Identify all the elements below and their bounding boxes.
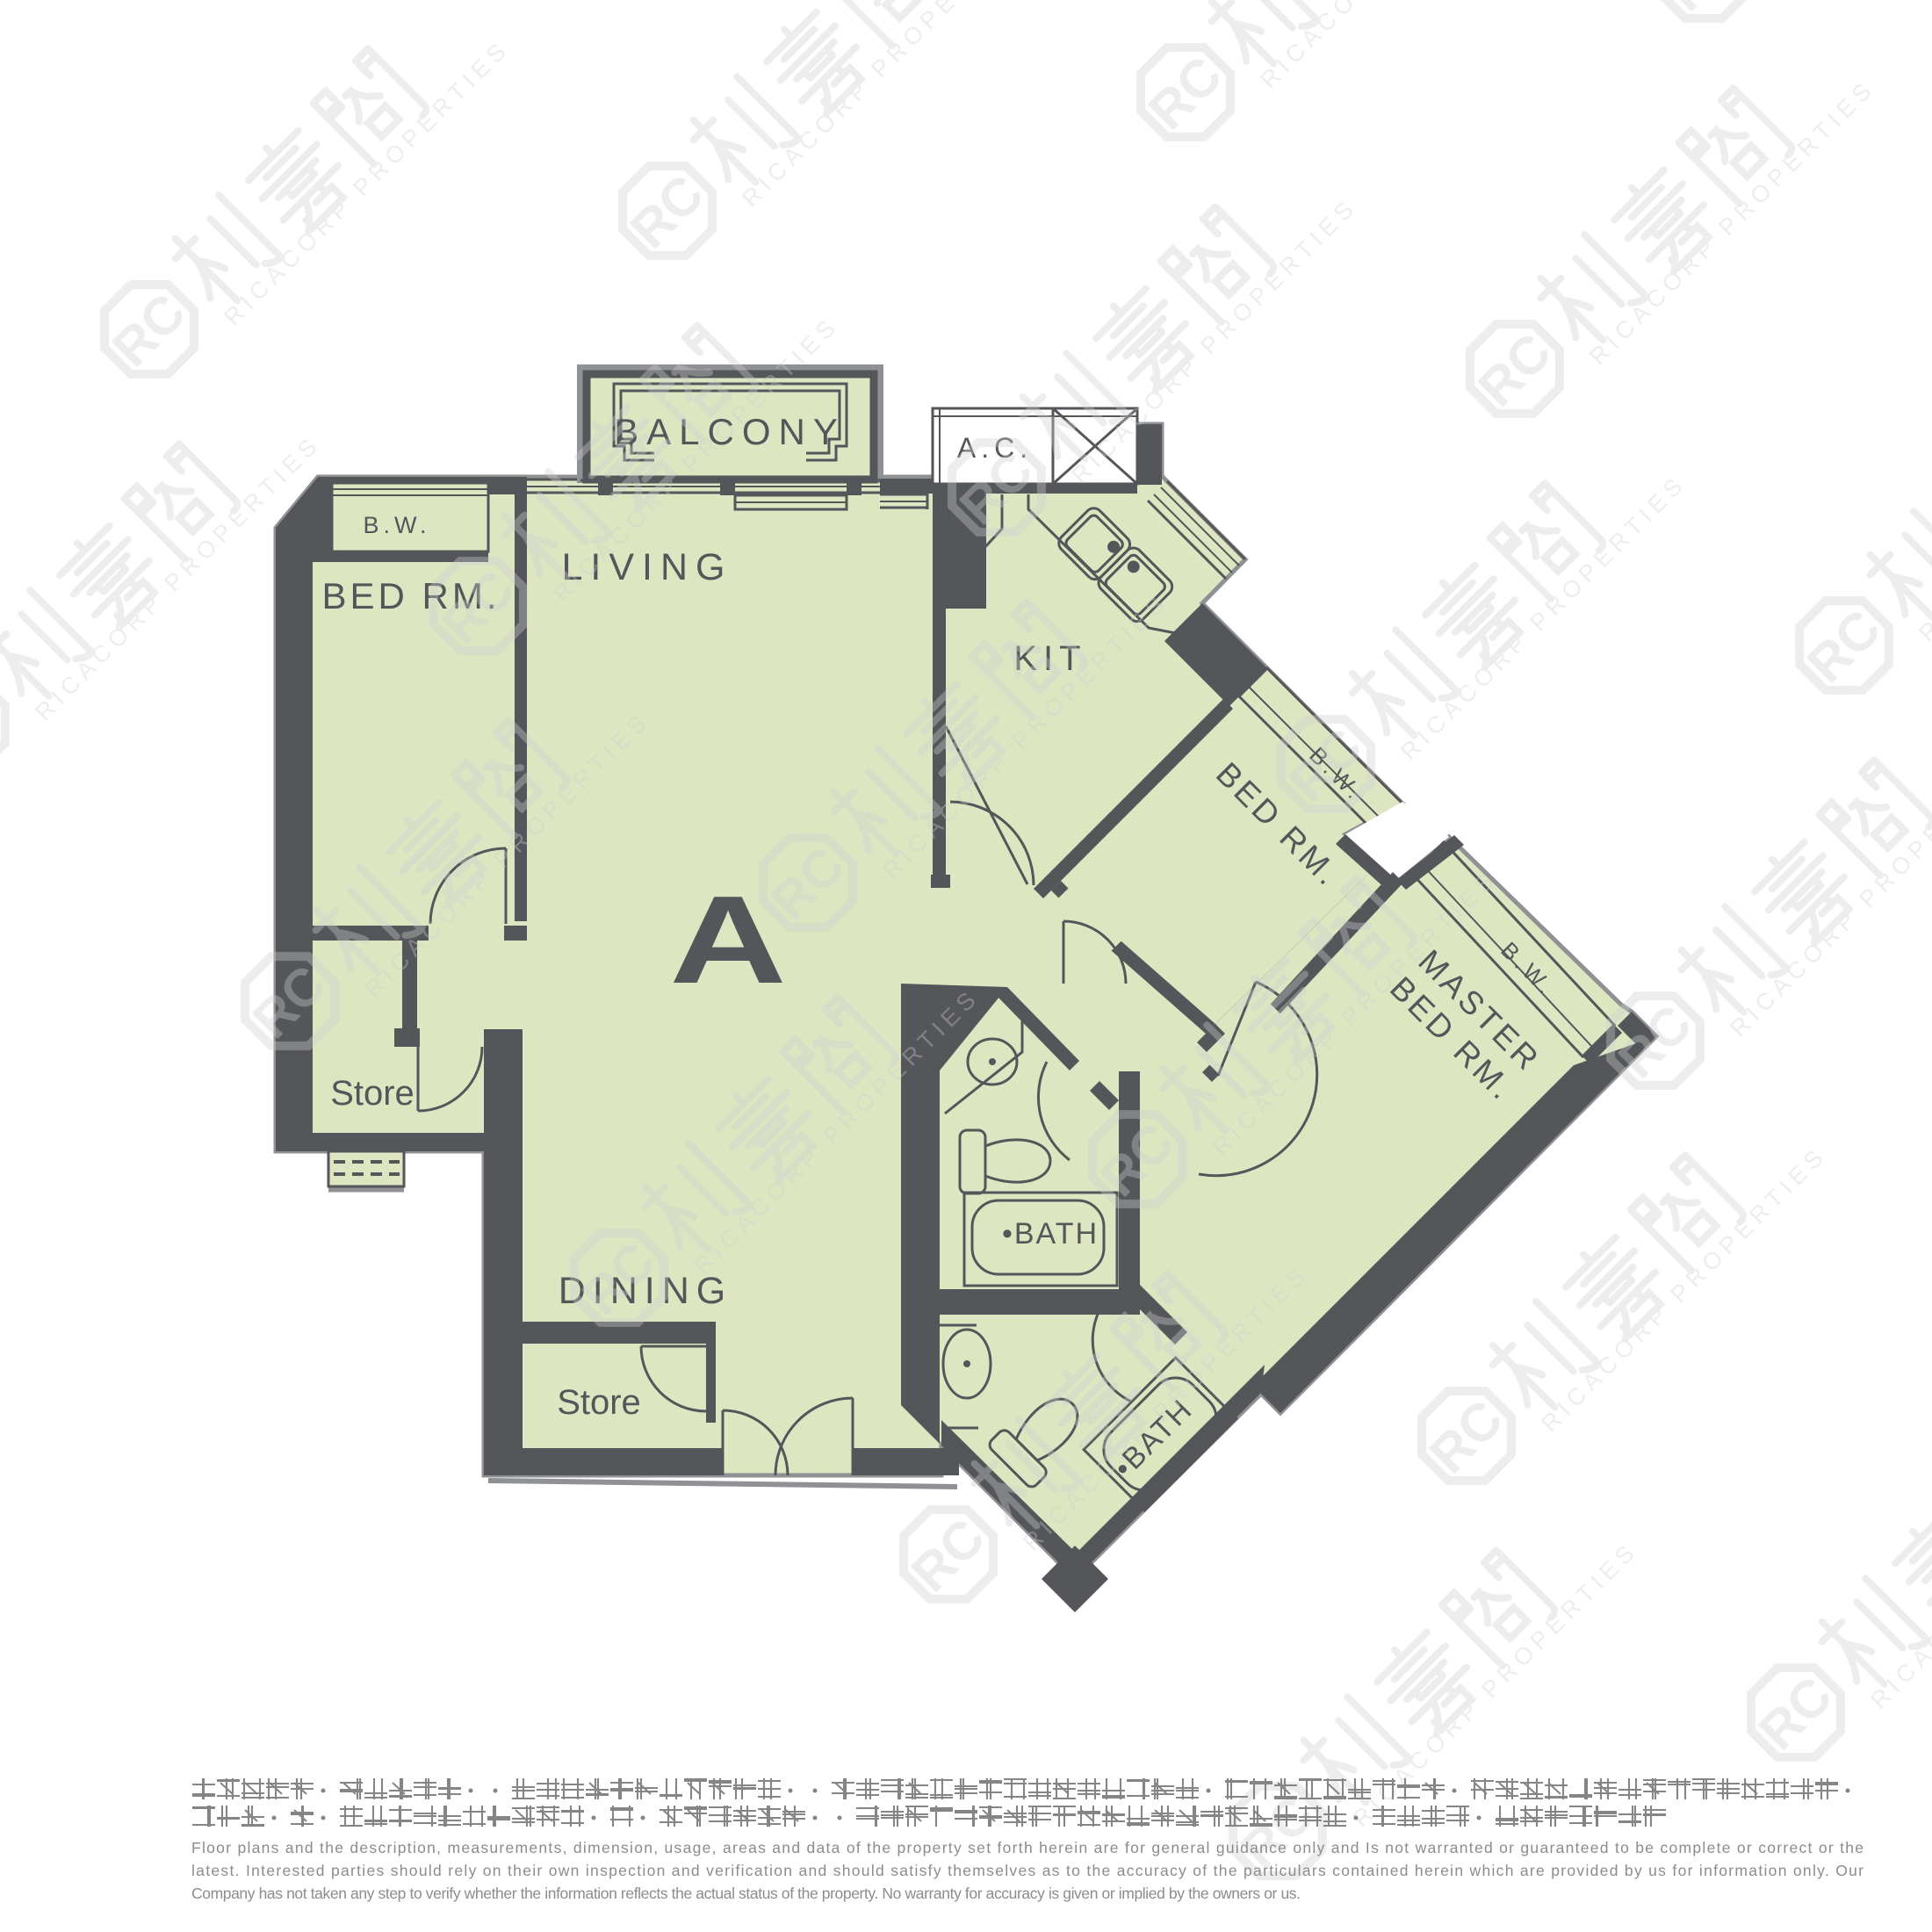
svg-text:Floor plans and the descriptio: Floor plans and the description, measure… (191, 1839, 1864, 1856)
svg-text:•BATH: •BATH (1002, 1217, 1099, 1251)
svg-text:latest. Interested parties sho: latest. Interested parties should rely o… (191, 1862, 1864, 1879)
svg-text:Store: Store (330, 1074, 415, 1113)
svg-text:Company has not taken any step: Company has not taken any step to verify… (191, 1885, 1301, 1902)
svg-text:B.W.: B.W. (363, 512, 430, 538)
svg-text:Store: Store (557, 1383, 641, 1422)
